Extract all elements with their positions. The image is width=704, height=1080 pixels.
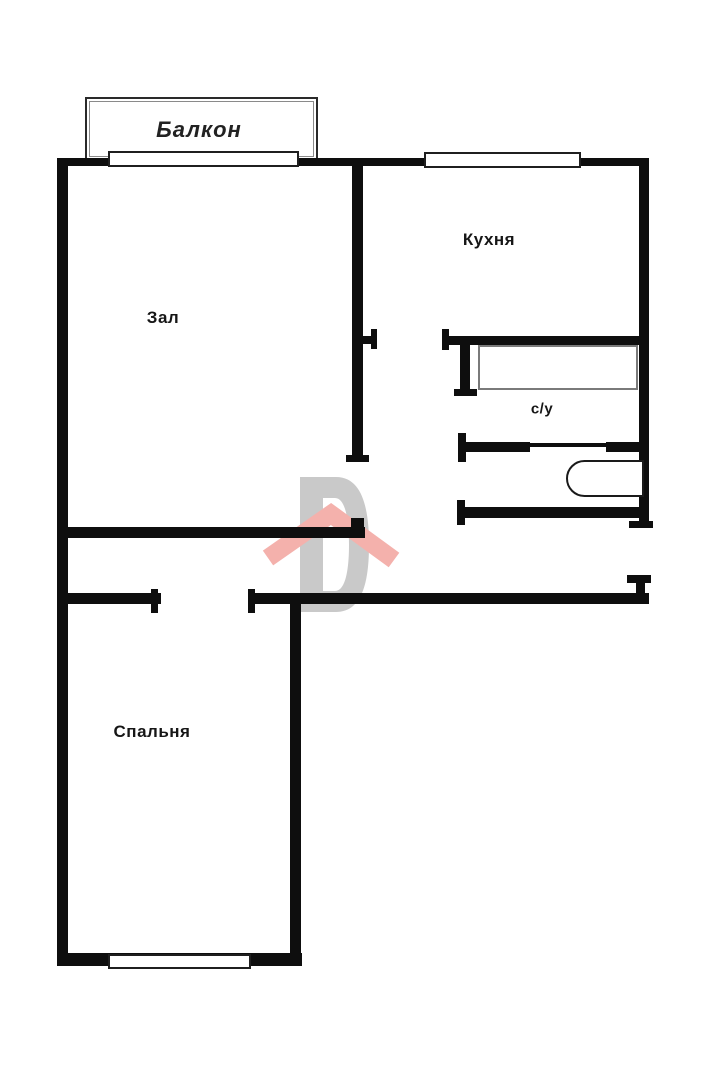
wall-living-bottom xyxy=(57,527,365,538)
balcony-label: Балкон xyxy=(156,117,242,143)
bathtub-icon xyxy=(478,345,638,390)
kitchen-label: Кухня xyxy=(463,230,515,250)
toilet-icon xyxy=(566,460,644,497)
bathroom-label: с/у xyxy=(531,401,553,418)
kitchen-door-jamb-cap xyxy=(371,329,377,349)
wall-hall-bottom-left xyxy=(57,593,161,604)
wall-bathroom-bottom-cap xyxy=(457,500,465,525)
wall-bathroom-mid-left xyxy=(466,442,530,452)
wall-bathroom-bottom xyxy=(462,507,649,518)
entrance-door-jamb-cap xyxy=(627,575,651,583)
wall-bathroom-top-cap xyxy=(442,329,449,350)
bedroom-door-jamb-left xyxy=(151,589,158,613)
wall-living-bottom-cap xyxy=(351,518,364,527)
living-room-label: Зал xyxy=(147,308,179,328)
wall-bathroom-stub-cap xyxy=(454,389,477,396)
bedroom-label: Спальня xyxy=(114,722,191,742)
wall-kitchen-living-end-cap xyxy=(346,455,369,462)
wall-bathroom-mid-door xyxy=(530,443,606,447)
balcony-window xyxy=(108,151,299,167)
wall-kitchen-living xyxy=(352,163,363,455)
wall-bathroom-mid-right xyxy=(606,442,649,452)
kitchen-window xyxy=(424,152,581,168)
wall-bathroom-top xyxy=(448,336,649,345)
bedroom-window xyxy=(108,954,251,969)
wall-exterior-right-end-cap xyxy=(629,521,653,528)
wall-bedroom-right xyxy=(290,597,301,966)
bedroom-door-jamb-right xyxy=(248,589,255,613)
wall-exterior-left xyxy=(57,158,68,966)
wall-bathroom-mid-cap xyxy=(458,433,466,462)
wall-bathroom-stub xyxy=(460,345,470,391)
floor-plan: Балкон Зал Кухня с/у Спальня xyxy=(0,0,704,1080)
wall-hall-bottom-right xyxy=(249,593,649,604)
